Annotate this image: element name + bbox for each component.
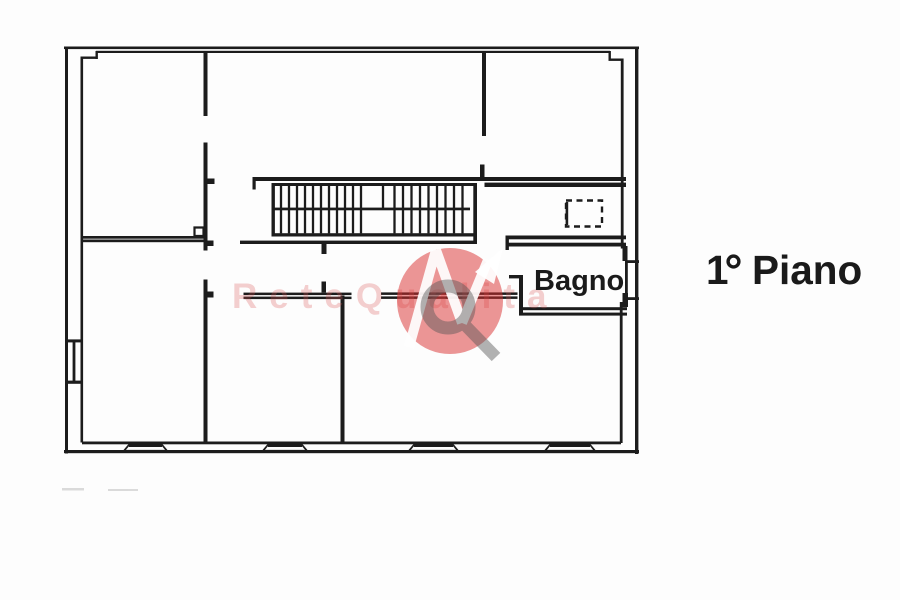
svg-text:Bagno: Bagno (534, 265, 624, 297)
svg-text:1: 1 (706, 247, 729, 293)
svg-text:ReteQualita: ReteQualita (232, 277, 559, 316)
svg-text:Piano: Piano (752, 247, 862, 293)
